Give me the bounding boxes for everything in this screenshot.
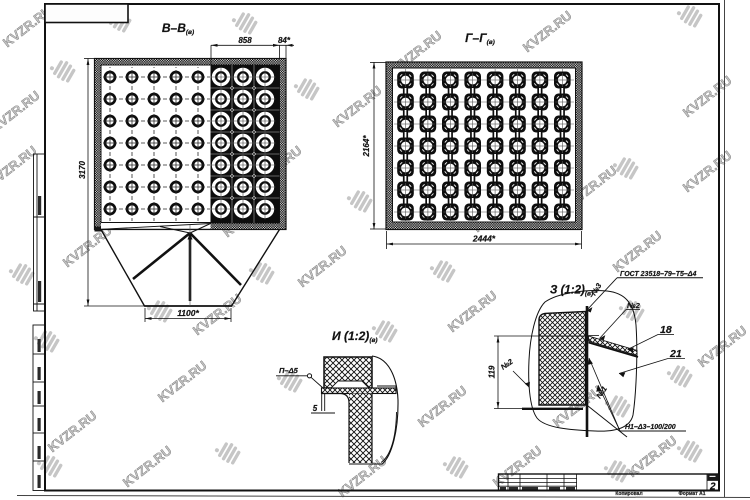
svg-text:2444*: 2444* [472, 234, 496, 244]
svg-text:2164*: 2164* [362, 135, 371, 158]
svg-text:Копировал: Копировал [615, 491, 642, 497]
svg-text:№2: №2 [627, 301, 641, 310]
svg-text:2: 2 [709, 482, 716, 493]
svg-text:84*: 84* [278, 36, 291, 45]
svg-text:Н1–Δ3–100/200: Н1–Δ3–100/200 [625, 424, 676, 431]
svg-text:119: 119 [488, 365, 497, 378]
svg-text:858: 858 [238, 36, 252, 45]
svg-text:5: 5 [313, 404, 318, 413]
svg-text:1100*: 1100* [177, 308, 199, 318]
svg-text:ГОСТ 23518–79–Т5–Δ4: ГОСТ 23518–79–Т5–Δ4 [620, 271, 696, 278]
svg-text:Формат А1: Формат А1 [679, 491, 706, 497]
svg-text:П–Δ5: П–Δ5 [279, 366, 299, 375]
svg-text:3170: 3170 [78, 161, 87, 179]
